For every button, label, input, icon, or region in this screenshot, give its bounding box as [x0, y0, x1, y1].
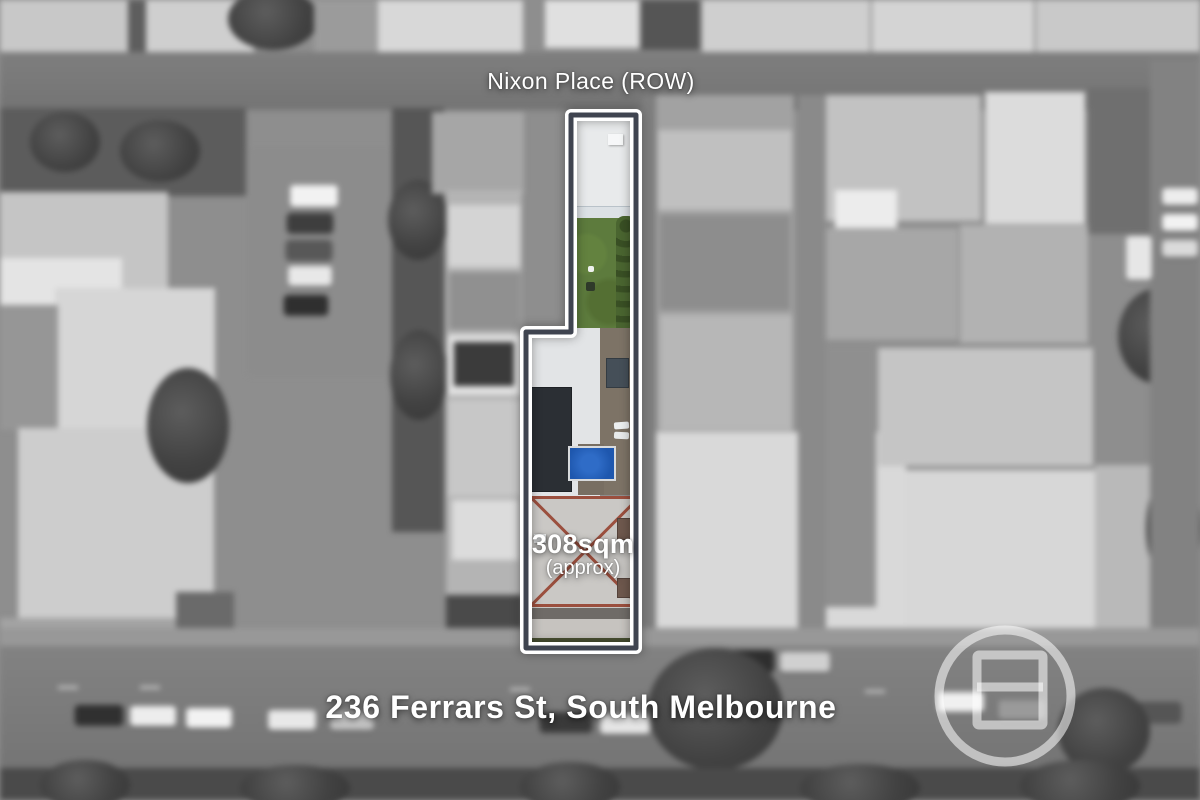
building-roof: [878, 348, 1093, 466]
parked-car: [998, 700, 1046, 720]
building-roof: [449, 272, 521, 330]
swimming-pool: [570, 448, 614, 479]
tree: [120, 120, 200, 182]
parked-car: [130, 706, 176, 726]
parked-car: [287, 213, 333, 233]
building-roof: [960, 225, 1088, 343]
street-label-nixon-place: Nixon Place (ROW): [440, 68, 742, 95]
building-roof: [128, 0, 146, 52]
building-roof: [314, 0, 380, 52]
parked-truck: [1126, 236, 1152, 280]
solar-panels: [531, 387, 572, 492]
building-roof: [432, 112, 524, 194]
tree: [30, 112, 100, 172]
building-roof: [798, 95, 826, 645]
area-label: 308sqm (approx): [518, 530, 648, 579]
parked-car: [75, 705, 123, 725]
building-roof: [0, 305, 58, 430]
building-roof: [660, 215, 790, 310]
address-label: 236 Ferrars St, South Melbourne: [231, 689, 931, 726]
tree: [390, 330, 448, 420]
parked-car: [290, 185, 338, 207]
garden-shed: [606, 358, 629, 388]
veranda-roof: [526, 619, 638, 638]
outdoor-chair: [614, 421, 629, 429]
aerial-property-photo: Nixon Place (ROW) 308sqm (approx) 236 Fe…: [0, 0, 1200, 800]
garden-item: [586, 282, 595, 291]
lane-marking: [140, 686, 160, 689]
parked-car: [284, 295, 328, 315]
building-roof: [905, 470, 1105, 646]
building-roof: [985, 92, 1085, 224]
building-roof: [826, 228, 958, 340]
rear-roof: [564, 113, 640, 208]
front-garden-strip: [526, 638, 638, 648]
building-roof: [448, 400, 521, 496]
area-qualifier: (approx): [518, 558, 648, 579]
front-cornice: [526, 608, 638, 619]
building-roof: [0, 0, 130, 52]
building-roof: [660, 315, 792, 430]
building-roof: [702, 0, 870, 60]
building-roof: [378, 0, 523, 54]
building-roof: [826, 345, 876, 607]
solar-roof: [454, 342, 514, 386]
rooftop-unit: [608, 134, 623, 145]
parked-car: [288, 266, 332, 286]
parked-car: [1162, 188, 1198, 205]
parked-car: [186, 708, 232, 728]
building-roof: [658, 130, 792, 210]
right-side-street: [1150, 60, 1200, 650]
outdoor-chair: [614, 432, 629, 440]
parked-car: [1162, 240, 1198, 257]
car-park: [248, 148, 413, 376]
parked-car: [1162, 214, 1198, 231]
building-roof: [448, 205, 520, 267]
building-roof: [835, 190, 897, 228]
garden-item: [588, 266, 594, 272]
parked-car: [938, 692, 984, 712]
parked-car: [780, 652, 830, 672]
building-roof: [452, 500, 518, 560]
chimney: [617, 578, 634, 598]
hedge: [616, 216, 636, 340]
tree: [147, 368, 229, 483]
building-roof: [640, 0, 700, 50]
parked-car: [286, 240, 332, 260]
lane-marking: [58, 686, 78, 689]
area-value: 308sqm: [518, 530, 648, 558]
